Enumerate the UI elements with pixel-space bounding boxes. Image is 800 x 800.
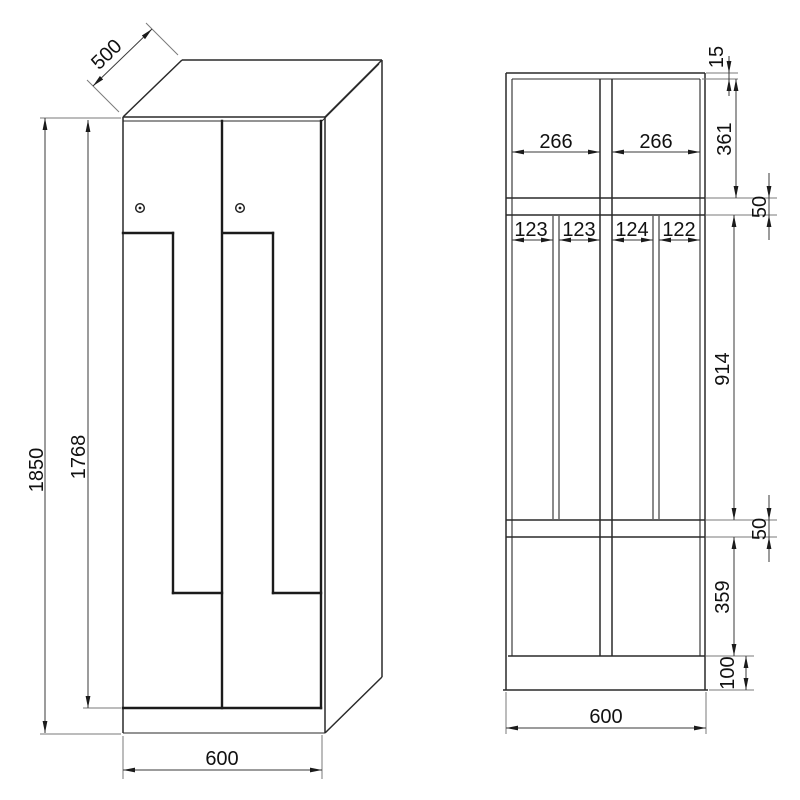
dim-door-height: 1768 — [68, 120, 121, 708]
dim-depth: 500 — [87, 23, 178, 112]
side-bottom-edge — [325, 677, 382, 733]
dim-upper-width-right-label: 266 — [639, 131, 672, 153]
top-face-left-edge — [123, 60, 182, 117]
dim-depth-label: 500 — [87, 35, 126, 74]
dim-slot-3-label: 124 — [615, 219, 648, 241]
dim-upper-width-right: 266 — [612, 131, 700, 153]
dim-upper-shelf-label: 50 — [749, 196, 771, 218]
dim-total-height-label: 1850 — [26, 448, 48, 493]
section-view: 266 266 123 123 124 122 — [503, 46, 777, 734]
dim-slot-1-label: 123 — [514, 219, 547, 241]
dim-upper-width-left-label: 266 — [539, 131, 572, 153]
locker-technical-drawing: 500 1850 1768 600 — [0, 0, 800, 800]
dim-lower-shelf: 50 — [749, 495, 771, 562]
dim-top-panel-label: 15 — [706, 46, 728, 68]
dim-middle-compartment-label: 914 — [712, 352, 734, 385]
dim-upper-shelf: 50 — [749, 173, 771, 240]
top-face-right-inner-edge — [322, 64, 379, 121]
dim-upper-width-left: 266 — [512, 131, 600, 153]
dim-plinth-label: 100 — [717, 656, 739, 689]
dim-upper-compartment-label: 361 — [714, 122, 736, 155]
dim-front-width-label: 600 — [205, 748, 238, 770]
dim-top-panel: 15 — [706, 46, 729, 96]
dim-lower-compartment-label: 359 — [712, 580, 734, 613]
dim-lower-compartment: 359 — [712, 537, 734, 656]
dim-slot-widths: 123 123 124 122 — [512, 219, 700, 241]
top-face-right-edge — [325, 60, 382, 117]
dim-slot-4-label: 122 — [662, 219, 695, 241]
dim-total-height: 1850 — [26, 118, 121, 734]
lock-cylinder-left-pin — [139, 207, 142, 210]
dim-front-width: 600 — [123, 735, 322, 779]
dim-slot-2-label: 123 — [562, 219, 595, 241]
dim-middle-compartment: 914 — [712, 215, 734, 520]
dim-section-width: 600 — [506, 692, 706, 734]
dim-section-width-label: 600 — [589, 706, 622, 728]
extension-line — [146, 23, 178, 55]
dim-lower-shelf-label: 50 — [749, 518, 771, 540]
dim-plinth: 100 — [717, 656, 746, 690]
dim-door-height-label: 1768 — [68, 435, 90, 480]
front-view: 500 1850 1768 600 — [26, 23, 382, 779]
dim-upper-compartment: 361 — [714, 79, 736, 198]
lock-cylinder-right-pin — [239, 207, 242, 210]
extension-line — [87, 80, 119, 112]
drawing-canvas: 500 1850 1768 600 — [0, 0, 800, 800]
z-doors — [123, 121, 321, 708]
